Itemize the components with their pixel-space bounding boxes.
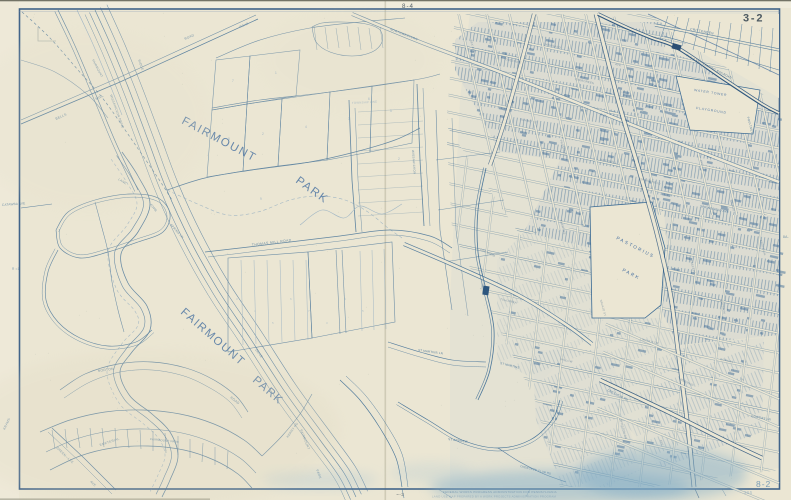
svg-text:3-2: 3-2 bbox=[743, 13, 764, 25]
svg-text:LAND USE MAP PREPARED BY A WOR: LAND USE MAP PREPARED BY A WORK PROJECTS… bbox=[432, 495, 556, 499]
svg-text:6: 6 bbox=[368, 97, 370, 101]
svg-text:4: 4 bbox=[305, 125, 307, 129]
svg-text:365: 365 bbox=[744, 490, 753, 495]
svg-text:FEDERAL WORKS PROGRESS ADMINIS: FEDERAL WORKS PROGRESS ADMINISTRATION FO… bbox=[443, 490, 557, 494]
svg-text:8-4: 8-4 bbox=[402, 3, 414, 10]
svg-text:R =1: R =1 bbox=[12, 267, 19, 271]
svg-text:8: 8 bbox=[228, 137, 230, 141]
svg-text:2: 2 bbox=[398, 157, 400, 161]
svg-text:7: 7 bbox=[232, 79, 234, 83]
svg-text:8A-: 8A- bbox=[783, 235, 789, 239]
svg-text:8-2: 8-2 bbox=[756, 479, 771, 489]
svg-text:9: 9 bbox=[260, 197, 262, 201]
svg-text:3: 3 bbox=[348, 117, 350, 121]
svg-text:5: 5 bbox=[390, 109, 392, 113]
svg-text:2: 2 bbox=[262, 132, 264, 136]
svg-text:~-2: ~-2 bbox=[396, 492, 404, 498]
svg-text:1: 1 bbox=[275, 71, 277, 75]
